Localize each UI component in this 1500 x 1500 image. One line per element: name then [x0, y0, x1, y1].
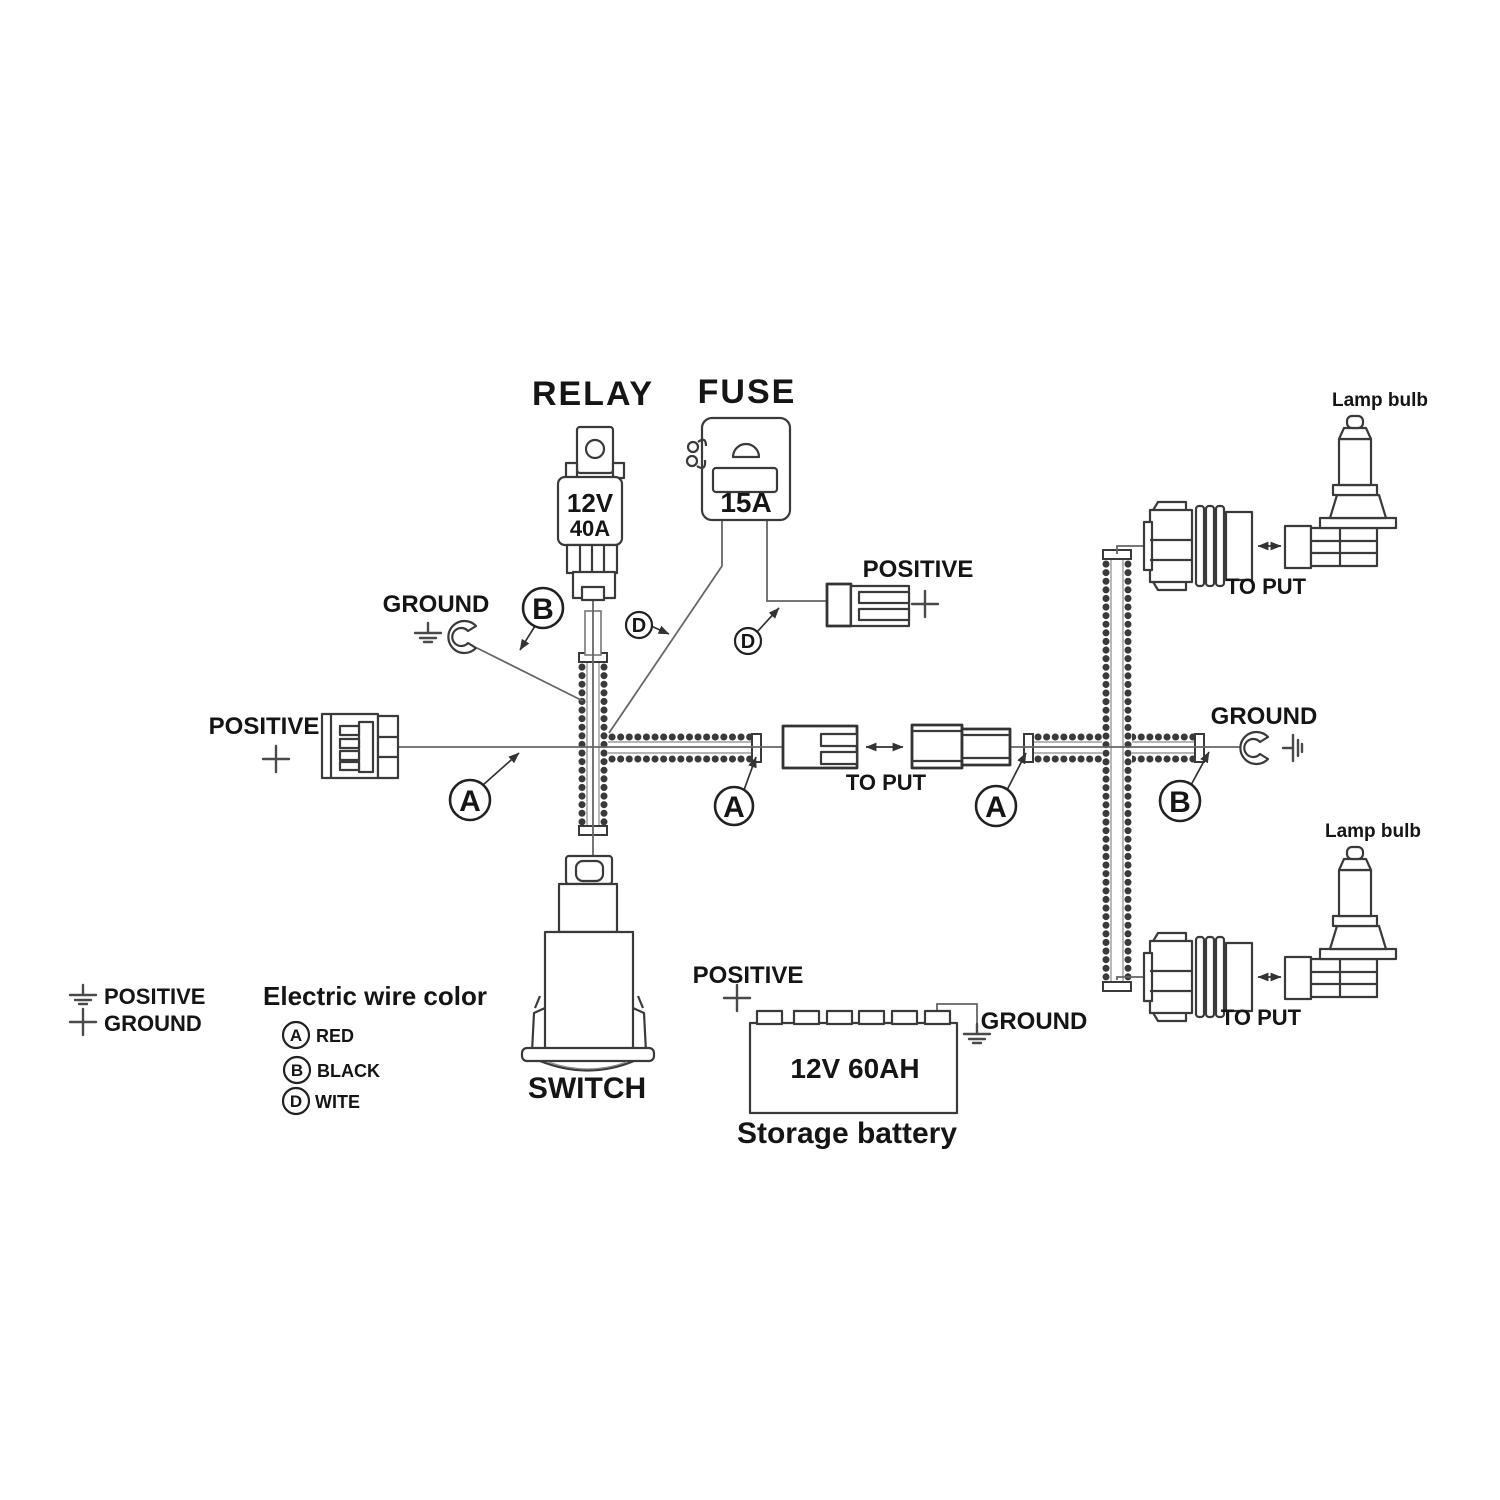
svg-text:A: A — [290, 1026, 302, 1045]
positive-symbol-icon — [70, 985, 96, 1004]
to-put-lamp-top-label: TO PUT — [1226, 574, 1307, 599]
svg-text:A: A — [459, 785, 481, 818]
legend-color-black: B BLACK — [284, 1057, 380, 1083]
fuse-current: 15A — [720, 487, 771, 518]
plus-icon — [263, 746, 289, 772]
svg-text:A: A — [723, 791, 745, 824]
wire-marker-d-fuse-right: D — [735, 608, 779, 654]
to-put-connector-pair-middle — [783, 725, 1010, 768]
svg-text:A: A — [985, 791, 1007, 824]
relay-title: RELAY — [532, 375, 654, 413]
legend: POSITIVE GROUND Electric wire color A RE… — [70, 981, 487, 1114]
legend-ground-label: GROUND — [104, 1011, 202, 1036]
legend-title: Electric wire color — [263, 981, 487, 1011]
relay-voltage: 12V — [567, 488, 614, 518]
battery-caption: Storage battery — [737, 1117, 957, 1150]
wiring-diagram: 12V 40A RELAY 15A FUSE POSITIVE GROUND — [0, 0, 1500, 1500]
harness-loom-right-vertical — [1102, 550, 1132, 991]
ground-right-label: GROUND — [1211, 703, 1318, 730]
wire-marker-d-fuse-left: D — [626, 612, 669, 638]
svg-text:B: B — [532, 593, 554, 626]
fuse-clip-icon — [688, 442, 698, 452]
legend-color-wite: D WITE — [283, 1088, 360, 1114]
plus-icon — [912, 591, 938, 617]
svg-text:RED: RED — [316, 1026, 354, 1046]
positive-left-label: POSITIVE — [209, 713, 320, 740]
svg-text:D: D — [290, 1092, 302, 1111]
ground-symbol-icon — [70, 1009, 96, 1035]
fork-terminal-icon — [448, 621, 476, 653]
lamp-bulb-top-label: Lamp bulb — [1332, 390, 1428, 411]
positive-connector-top — [827, 584, 938, 626]
svg-text:D: D — [741, 631, 755, 653]
lamp-bulb-top — [1285, 416, 1396, 568]
ground-icon — [1283, 735, 1302, 761]
battery-positive-label: POSITIVE — [693, 962, 804, 989]
to-put-lamp-bottom-label: TO PUT — [1221, 1005, 1302, 1030]
battery-rating: 12V 60AH — [790, 1053, 919, 1084]
battery-ground-label: GROUND — [981, 1008, 1088, 1035]
ground-upper-left-label: GROUND — [383, 591, 490, 618]
svg-text:B: B — [1169, 786, 1191, 819]
wire-marker-a-left: A — [450, 753, 519, 820]
fuse-title: FUSE — [698, 373, 797, 411]
legend-color-red: A RED — [283, 1022, 354, 1048]
ground-terminal-right — [1240, 732, 1302, 764]
svg-text:WITE: WITE — [315, 1092, 360, 1112]
lamp-bulb-bottom-label: Lamp bulb — [1325, 821, 1421, 842]
wire-marker-a-middle: A — [715, 757, 756, 825]
wire-fuse-to-positive-top — [767, 520, 827, 601]
wire-ground-upper-left — [477, 648, 583, 701]
svg-text:B: B — [291, 1061, 303, 1080]
svg-text:BLACK: BLACK — [317, 1061, 380, 1081]
harness-loom-left-horizontal — [604, 733, 761, 763]
relay-current: 40A — [570, 516, 610, 541]
relay-assembly: 12V 40A — [558, 427, 624, 600]
switch-assembly — [522, 856, 654, 1071]
positive-top-label: POSITIVE — [863, 556, 974, 583]
fuse-assembly: 15A — [687, 418, 790, 520]
legend-positive-label: POSITIVE — [104, 984, 205, 1009]
ground-icon — [415, 623, 441, 642]
lamp-bulb-bottom — [1285, 847, 1396, 999]
svg-text:D: D — [632, 615, 646, 637]
wire-marker-b-relay: B — [520, 588, 563, 650]
to-put-middle-label: TO PUT — [846, 770, 927, 795]
fork-terminal-icon — [1240, 732, 1268, 764]
switch-label: SWITCH — [528, 1072, 646, 1105]
ground-terminal-upper-left — [415, 621, 476, 653]
